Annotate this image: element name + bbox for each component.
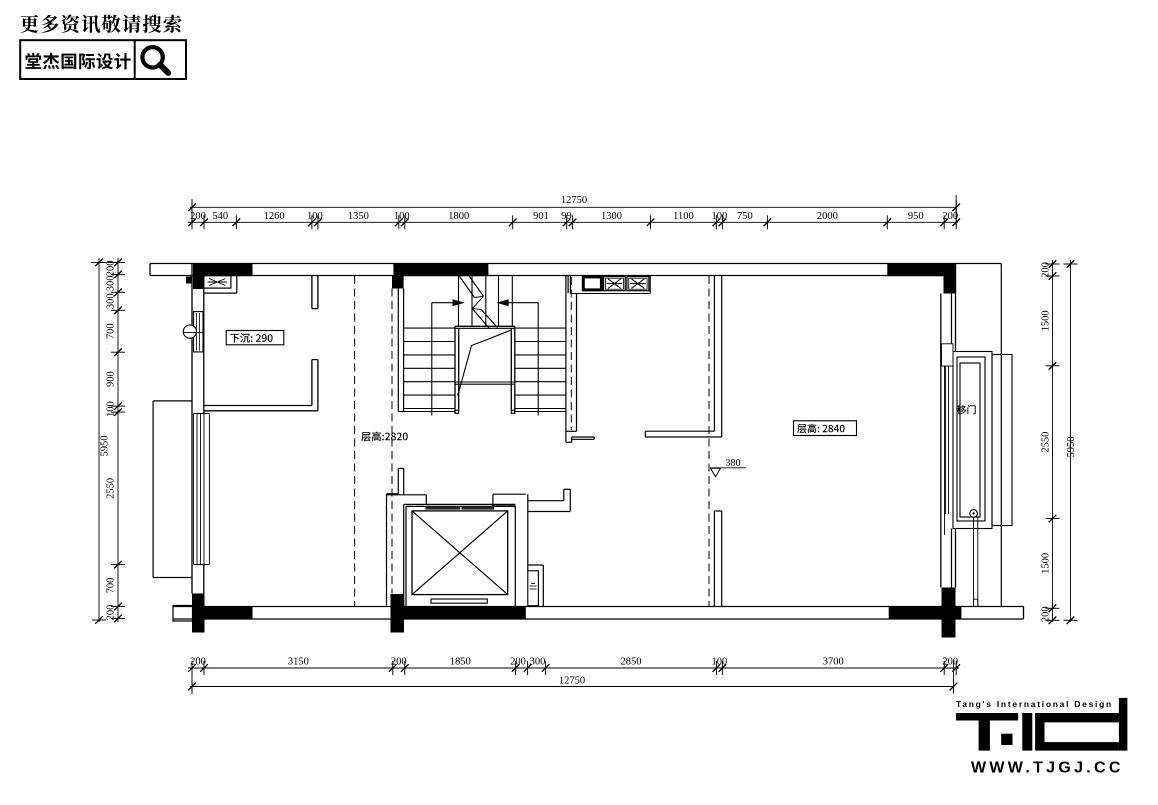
svg-text:900: 900 [106,371,117,387]
svg-text:1100: 1100 [673,211,694,222]
svg-text:2550: 2550 [106,478,117,499]
svg-text:100: 100 [307,211,323,222]
svg-text:2000: 2000 [817,211,838,222]
svg-text:5950: 5950 [1066,437,1077,458]
svg-text:950: 950 [908,211,924,222]
svg-text:Tang's International Design: Tang's International Design [956,699,1113,709]
svg-text:200: 200 [942,211,958,222]
svg-text:200: 200 [106,261,117,277]
svg-text:1350: 1350 [348,211,369,222]
svg-text:1300: 1300 [601,211,622,222]
svg-text:200: 200 [1041,262,1052,278]
svg-text:200: 200 [106,605,117,621]
svg-text:300: 300 [106,275,117,291]
svg-text:12750: 12750 [561,195,587,206]
svg-text:100: 100 [712,211,728,222]
svg-text:100: 100 [394,211,410,222]
svg-text:12750: 12750 [559,676,585,687]
svg-text:200: 200 [190,657,206,668]
svg-text:1850: 1850 [450,657,471,668]
svg-text:540: 540 [212,211,228,222]
svg-text:300: 300 [106,293,117,309]
svg-text:1800: 1800 [448,211,469,222]
svg-text:1500: 1500 [1041,310,1052,331]
svg-text:750: 750 [737,211,753,222]
svg-text:700: 700 [106,323,117,339]
svg-text:1260: 1260 [264,211,285,222]
svg-text:200: 200 [391,657,407,668]
svg-text:200: 200 [190,211,206,222]
svg-text:3150: 3150 [288,657,309,668]
svg-text:3700: 3700 [823,657,844,668]
svg-text:WWW.TJGJ.CC: WWW.TJGJ.CC [971,760,1124,777]
svg-text:100: 100 [106,401,117,417]
svg-text:200: 200 [942,657,958,668]
svg-text:99: 99 [561,211,572,222]
svg-text:901: 901 [533,211,549,222]
svg-text:2550: 2550 [1041,432,1052,453]
svg-text:100: 100 [712,657,728,668]
svg-text:2850: 2850 [621,657,642,668]
svg-text:200: 200 [1041,606,1052,622]
svg-text:1500: 1500 [1041,553,1052,574]
svg-text:300: 300 [530,657,546,668]
svg-text:200: 200 [510,657,526,668]
svg-text:700: 700 [106,578,117,594]
svg-text:380: 380 [726,458,741,469]
svg-text:5950: 5950 [100,436,111,457]
